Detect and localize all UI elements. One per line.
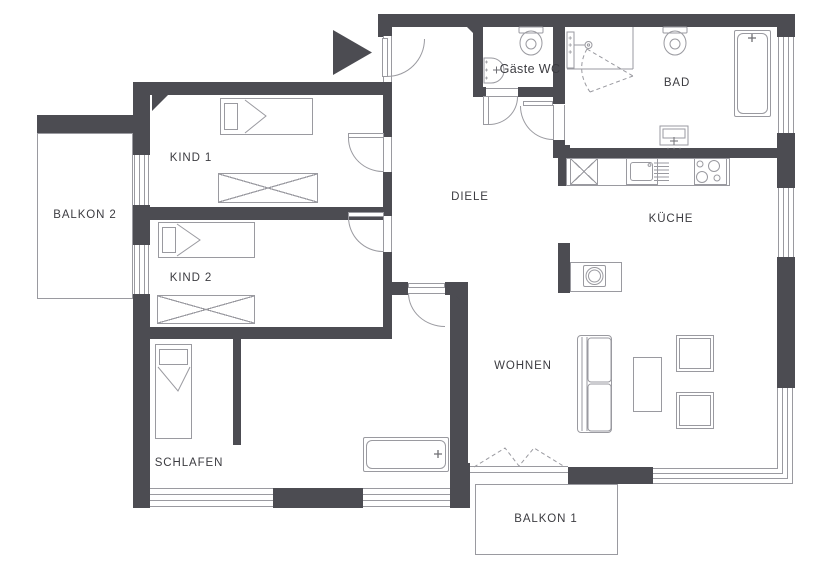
wardrobe-kind1	[218, 173, 318, 203]
corner-wedge-kind1	[152, 95, 168, 111]
floor-plan: BALKON 2 KIND 1 KIND 2 SCHLAFEN DIELE Gä…	[0, 0, 832, 574]
wall-right-b	[777, 133, 795, 188]
wall-kids-right-b	[383, 172, 392, 216]
kind2-door-swing	[348, 217, 383, 252]
pillow-kind2	[162, 227, 176, 253]
wall-kids-right-c	[383, 252, 392, 339]
wall-island-stub	[558, 243, 570, 293]
window-kind1	[134, 155, 149, 205]
balcony-door-threshold	[470, 466, 568, 473]
wall-right-a	[777, 14, 795, 37]
entrance-door-swing	[387, 39, 425, 77]
wall-corner-sw	[450, 463, 470, 508]
room-label-wohnen: WOHNEN	[494, 360, 552, 372]
room-label-bad: BAD	[664, 77, 690, 89]
bad-door-swing	[520, 106, 553, 140]
room-label-kueche: KÜCHE	[649, 213, 694, 225]
wall-kind2-bottom	[148, 327, 392, 339]
window-kind2	[134, 245, 149, 294]
wall-central	[450, 295, 468, 463]
schlafen-door	[408, 283, 445, 288]
room-label-gaeste-wc: Gäste WC	[500, 62, 561, 76]
wc-door-swing	[489, 97, 518, 125]
wall-diele-south-a	[392, 282, 408, 295]
wall-top	[378, 14, 795, 27]
window-bad	[778, 37, 794, 133]
kind2-door-opening	[383, 216, 392, 252]
kind1-door-opening	[383, 137, 392, 172]
room-label-kind1: KIND 1	[170, 152, 212, 164]
room-label-diele: DIELE	[451, 191, 489, 203]
room-label-balkon1: BALKON 1	[514, 513, 577, 525]
corner-window-line	[653, 388, 778, 469]
kitchen-sink-basin	[630, 162, 653, 181]
room-label-kind2: KIND 2	[170, 272, 212, 284]
pillow-schlafen	[159, 349, 188, 365]
wall-wc-bottom-right	[518, 87, 553, 97]
wardrobe-kind2	[157, 295, 255, 324]
bathtub-bad-inner	[737, 33, 768, 114]
room-label-balkon2: BALKON 2	[53, 209, 116, 221]
toilet-icon-bad	[663, 27, 687, 55]
wall-balkon1-pier	[568, 467, 653, 484]
schlafen-door-swing	[408, 293, 445, 327]
tall-cabinet	[570, 158, 598, 185]
wall-wc-bad	[553, 14, 565, 104]
toilet-icon-wc	[519, 27, 543, 55]
washing-machine	[583, 265, 606, 287]
stove	[694, 158, 727, 185]
kind1-door-swing	[348, 138, 383, 172]
washbasin-icon-bad	[660, 126, 688, 149]
pillow-kind1	[224, 103, 238, 130]
corner-wedge-wc	[467, 27, 477, 37]
coffee-table	[633, 357, 662, 412]
wall-schlafen-partition	[233, 339, 241, 445]
wall-balkon2-screen	[37, 115, 148, 133]
bad-door-opening	[553, 105, 565, 140]
wall-right-c	[777, 257, 795, 388]
window-schlafen-1	[150, 488, 273, 507]
window-kueche	[778, 188, 794, 257]
armchair-1-inner	[679, 338, 711, 369]
wall-kids-right-a	[383, 95, 392, 137]
armchair-2-inner	[679, 395, 711, 426]
wall-diele-south-b	[445, 282, 468, 295]
entrance-arrow-icon	[333, 30, 372, 75]
wall-kitchen	[565, 148, 786, 158]
window-schlafen-2	[363, 488, 450, 507]
wc-door-opening	[486, 88, 518, 97]
sofa	[577, 335, 612, 433]
bathtub-schlafen-inner	[366, 440, 446, 469]
folding-balcony-door	[474, 448, 565, 467]
room-label-schlafen: SCHLAFEN	[155, 457, 224, 469]
wall-kind1-top	[135, 82, 392, 95]
wall-bottom-pier	[273, 488, 363, 508]
shower-icon	[567, 27, 633, 92]
